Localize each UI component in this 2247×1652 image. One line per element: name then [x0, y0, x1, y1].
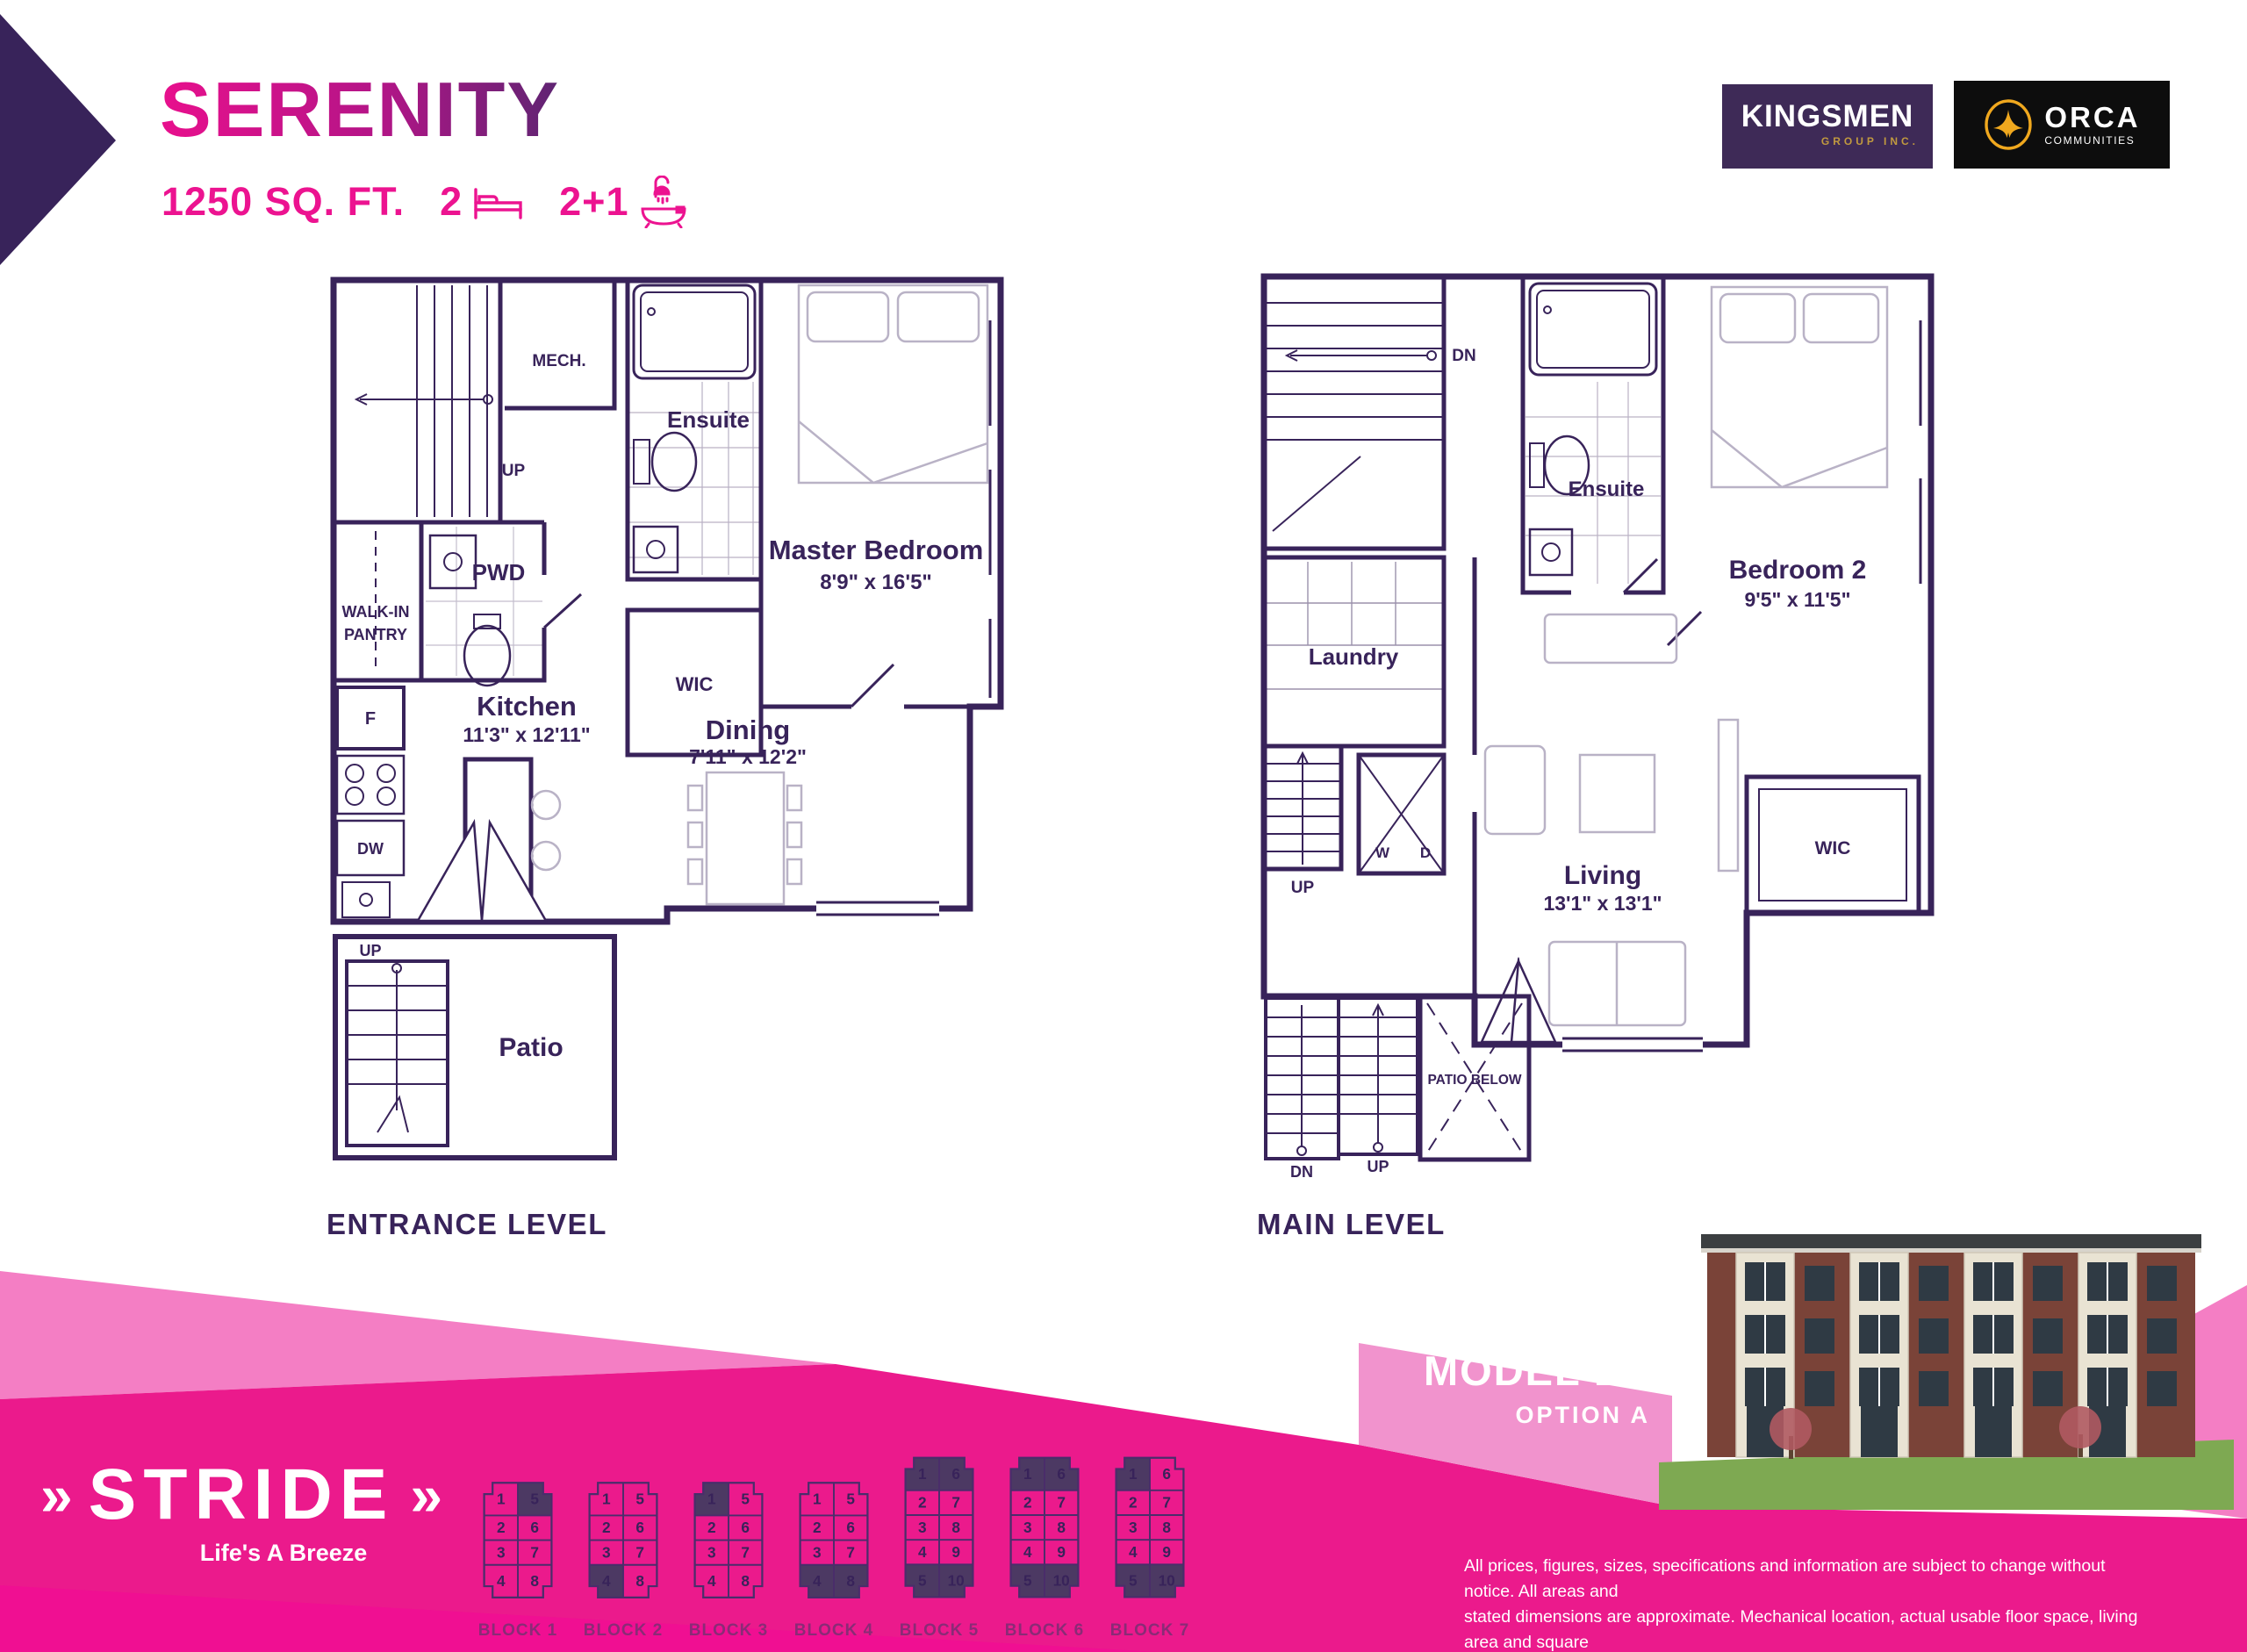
- svg-text:4: 4: [918, 1543, 927, 1561]
- svg-text:6: 6: [1162, 1465, 1171, 1483]
- svg-text:8: 8: [1162, 1519, 1171, 1536]
- svg-text:9: 9: [1162, 1543, 1171, 1561]
- svg-text:8: 8: [846, 1572, 855, 1590]
- svg-text:3: 3: [707, 1543, 716, 1561]
- brand-tagline: Life's A Breeze: [48, 1540, 434, 1567]
- mech-label: MECH.: [532, 352, 585, 370]
- orca-logo: ORCA COMMUNITIES: [1954, 81, 2170, 169]
- svg-text:4: 4: [1129, 1543, 1138, 1561]
- block-grid: 12345678910: [1002, 1448, 1087, 1610]
- svg-text:5: 5: [741, 1490, 750, 1508]
- master-bedroom-dims: 8'9" x 16'5": [820, 571, 932, 594]
- chevron-right-icon: »: [410, 1466, 442, 1524]
- block-label: BLOCK 2: [584, 1621, 663, 1641]
- block-diagram: 12345678 BLOCK 3: [686, 1474, 771, 1641]
- svg-text:9: 9: [951, 1543, 960, 1561]
- svg-text:1: 1: [813, 1490, 822, 1508]
- entrance-level-floor-plan: MECH. UP Ensuite WALK-IN PANTRY PWD WIC …: [325, 268, 1009, 1172]
- wic2-label: WIC: [1815, 838, 1851, 858]
- spec-row: 1250 SQ. FT. 2 2+1: [162, 176, 689, 228]
- svg-text:6: 6: [1057, 1465, 1066, 1483]
- block-diagram: 12345678 BLOCK 4: [792, 1474, 876, 1641]
- block-availability-diagrams: 12345678 BLOCK 1 12345678 BLOCK 2 123456…: [476, 1448, 1192, 1641]
- block-diagram: 12345678910 BLOCK 7: [1108, 1448, 1192, 1641]
- dining-label: Dining: [706, 715, 790, 745]
- svg-text:4: 4: [707, 1572, 716, 1590]
- block-grid: 12345678910: [1108, 1448, 1192, 1610]
- living-dims: 13'1" x 13'1": [1543, 892, 1662, 915]
- svg-text:2: 2: [813, 1519, 822, 1536]
- living-label: Living: [1564, 861, 1641, 890]
- block-grid: 12345678: [476, 1474, 560, 1610]
- svg-text:8: 8: [1057, 1519, 1066, 1536]
- wic-label: WIC: [676, 673, 714, 695]
- block-label: BLOCK 1: [478, 1621, 557, 1641]
- master-bedroom-label: Master Bedroom: [769, 535, 984, 565]
- svg-text:5: 5: [635, 1490, 644, 1508]
- svg-text:3: 3: [918, 1519, 927, 1536]
- svg-text:2: 2: [707, 1519, 716, 1536]
- svg-text:7: 7: [1057, 1494, 1066, 1512]
- kitchen-label: Kitchen: [477, 691, 577, 722]
- svg-text:8: 8: [530, 1572, 539, 1590]
- block-label: BLOCK 5: [900, 1621, 979, 1641]
- block-grid: 12345678: [686, 1474, 771, 1610]
- svg-text:8: 8: [951, 1519, 960, 1536]
- kingsmen-logo-sub: GROUP INC.: [1722, 135, 1933, 147]
- svg-text:5: 5: [1129, 1572, 1138, 1590]
- svg-text:1: 1: [918, 1465, 927, 1483]
- svg-text:9: 9: [1057, 1543, 1066, 1561]
- svg-text:3: 3: [1023, 1519, 1032, 1536]
- brand-name: STRIDE: [89, 1459, 395, 1531]
- svg-text:7: 7: [1162, 1494, 1171, 1512]
- stride-logo: » STRIDE » Life's A Breeze: [48, 1459, 434, 1567]
- whale-tail-icon: [1983, 99, 2034, 150]
- model-option: OPTION A: [1362, 1402, 1650, 1429]
- bed-count: 2: [440, 179, 463, 225]
- dn-exterior-label: DN: [1290, 1163, 1313, 1181]
- patio-up-label: UP: [359, 942, 381, 959]
- pwd-label: PWD: [472, 559, 526, 585]
- floor-plan-brochure-page: SERENITY 1250 SQ. FT. 2 2+1: [0, 0, 2247, 1652]
- svg-text:4: 4: [602, 1572, 611, 1590]
- block-diagram: 12345678 BLOCK 1: [476, 1474, 560, 1641]
- svg-text:10: 10: [1159, 1572, 1175, 1590]
- ensuite-label: Ensuite: [667, 406, 750, 433]
- svg-text:6: 6: [635, 1519, 644, 1536]
- svg-text:1: 1: [1129, 1465, 1138, 1483]
- up-stairs-label: UP: [1291, 879, 1315, 897]
- orca-logo-sub: COMMUNITIES: [2044, 134, 2140, 147]
- svg-text:2: 2: [1023, 1494, 1032, 1512]
- svg-text:2: 2: [602, 1519, 611, 1536]
- dishwasher-label: DW: [357, 840, 384, 858]
- dryer-label: D: [1420, 844, 1431, 861]
- laundry-label: Laundry: [1309, 643, 1399, 670]
- pantry-label-2: PANTRY: [344, 626, 407, 643]
- dn-label: DN: [1452, 347, 1475, 365]
- svg-text:4: 4: [1023, 1543, 1032, 1561]
- svg-text:2: 2: [497, 1519, 506, 1536]
- bedroom2-dims: 9'5" x 11'5": [1744, 588, 1850, 611]
- svg-text:7: 7: [951, 1494, 960, 1512]
- dining-dims: 7'11" x 12'2": [689, 745, 807, 768]
- block-diagram: 12345678910 BLOCK 5: [897, 1448, 981, 1641]
- model-label: MODEL B1 OPTION A: [1362, 1347, 1650, 1429]
- svg-text:3: 3: [1129, 1519, 1138, 1536]
- washer-label: W: [1375, 844, 1390, 861]
- block-label: BLOCK 6: [1005, 1621, 1084, 1641]
- svg-text:1: 1: [707, 1490, 716, 1508]
- block-grid: 12345678910: [897, 1448, 981, 1610]
- svg-text:5: 5: [918, 1572, 927, 1590]
- svg-text:4: 4: [813, 1572, 822, 1590]
- block-diagram: 12345678910 BLOCK 6: [1002, 1448, 1087, 1641]
- svg-text:6: 6: [741, 1519, 750, 1536]
- svg-text:10: 10: [948, 1572, 965, 1590]
- svg-text:10: 10: [1053, 1572, 1070, 1590]
- main-level-floor-plan: DN Laundry W D Ensuite Bedroom 2 9'5" x …: [1255, 268, 1940, 1185]
- bath-icon: [638, 176, 689, 228]
- block-label: BLOCK 7: [1110, 1621, 1189, 1641]
- chevron-right-icon: »: [40, 1466, 73, 1524]
- svg-text:6: 6: [530, 1519, 539, 1536]
- svg-text:8: 8: [635, 1572, 644, 1590]
- svg-text:5: 5: [846, 1490, 855, 1508]
- ensuite2-label: Ensuite: [1569, 478, 1645, 501]
- fridge-label: F: [365, 709, 376, 729]
- patio-below-label: PATIO BELOW: [1427, 1073, 1521, 1088]
- svg-text:3: 3: [497, 1543, 506, 1561]
- patio-label: Patio: [499, 1033, 563, 1062]
- svg-text:1: 1: [497, 1490, 506, 1508]
- svg-text:3: 3: [813, 1543, 822, 1561]
- bedroom2-label: Bedroom 2: [1729, 556, 1867, 585]
- block-grid: 12345678: [581, 1474, 665, 1610]
- corner-arrow-decoration: [0, 0, 123, 272]
- svg-text:2: 2: [918, 1494, 927, 1512]
- svg-text:5: 5: [1023, 1572, 1032, 1590]
- svg-text:1: 1: [602, 1490, 611, 1508]
- svg-text:5: 5: [530, 1490, 539, 1508]
- svg-text:6: 6: [846, 1519, 855, 1536]
- svg-text:4: 4: [497, 1572, 506, 1590]
- stairs-up-label: UP: [502, 462, 526, 480]
- building-rendering: [1659, 1218, 2234, 1510]
- page-title: SERENITY: [160, 65, 560, 154]
- pantry-label-1: WALK-IN: [342, 603, 410, 621]
- svg-text:1: 1: [1023, 1465, 1032, 1483]
- svg-text:7: 7: [846, 1543, 855, 1561]
- kingsmen-logo-name: KINGSMEN: [1722, 99, 1933, 134]
- kitchen-dims: 11'3" x 12'11": [463, 723, 590, 746]
- svg-text:7: 7: [635, 1543, 644, 1561]
- model-name: MODEL B1: [1362, 1347, 1650, 1395]
- svg-text:8: 8: [741, 1572, 750, 1590]
- disclaimer-text: All prices, figures, sizes, specificatio…: [1464, 1554, 2149, 1652]
- bed-icon: [471, 183, 524, 221]
- svg-text:6: 6: [951, 1465, 960, 1483]
- svg-text:2: 2: [1129, 1494, 1138, 1512]
- block-label: BLOCK 3: [689, 1621, 768, 1641]
- area-label: 1250 SQ. FT.: [162, 179, 405, 225]
- svg-text:3: 3: [602, 1543, 611, 1561]
- kingsmen-logo: KINGSMEN GROUP INC.: [1722, 84, 1933, 169]
- up-exterior-label: UP: [1367, 1158, 1389, 1175]
- bath-count: 2+1: [559, 179, 628, 225]
- block-label: BLOCK 4: [794, 1621, 873, 1641]
- block-diagram: 12345678 BLOCK 2: [581, 1474, 665, 1641]
- orca-logo-name: ORCA: [2044, 103, 2140, 132]
- svg-text:7: 7: [741, 1543, 750, 1561]
- svg-text:7: 7: [530, 1543, 539, 1561]
- block-grid: 12345678: [792, 1474, 876, 1610]
